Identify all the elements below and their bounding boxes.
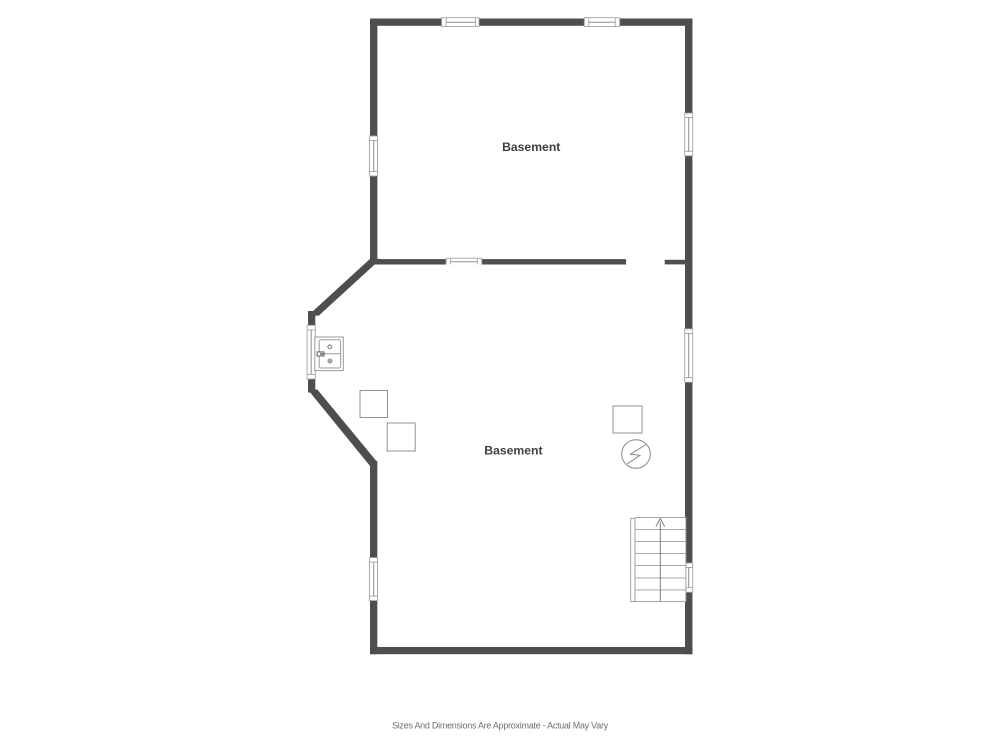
svg-text:Sizes And Dimensions Are Appro: Sizes And Dimensions Are Approximate - A… [392,721,609,731]
svg-text:Basement: Basement [484,444,542,458]
svg-text:Basement: Basement [502,140,560,154]
